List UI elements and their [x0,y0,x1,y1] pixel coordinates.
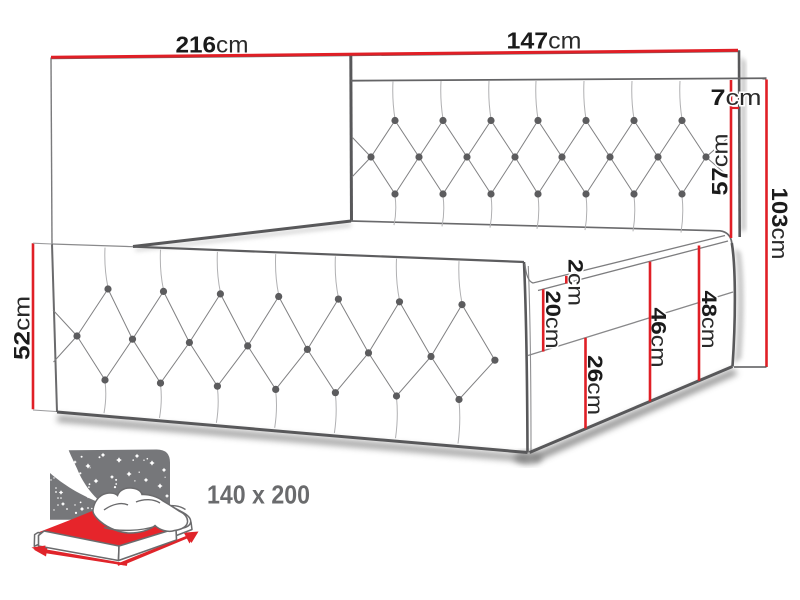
svg-text:48cm: 48cm [697,291,720,349]
svg-text:140 x 200: 140 x 200 [207,480,310,510]
svg-text:103cm: 103cm [767,188,792,260]
svg-text:52cm: 52cm [10,296,35,360]
svg-text:7cm: 7cm [711,85,762,110]
svg-text:147cm: 147cm [507,28,582,54]
svg-text:57cm: 57cm [707,134,732,196]
svg-text:216cm: 216cm [176,32,249,58]
